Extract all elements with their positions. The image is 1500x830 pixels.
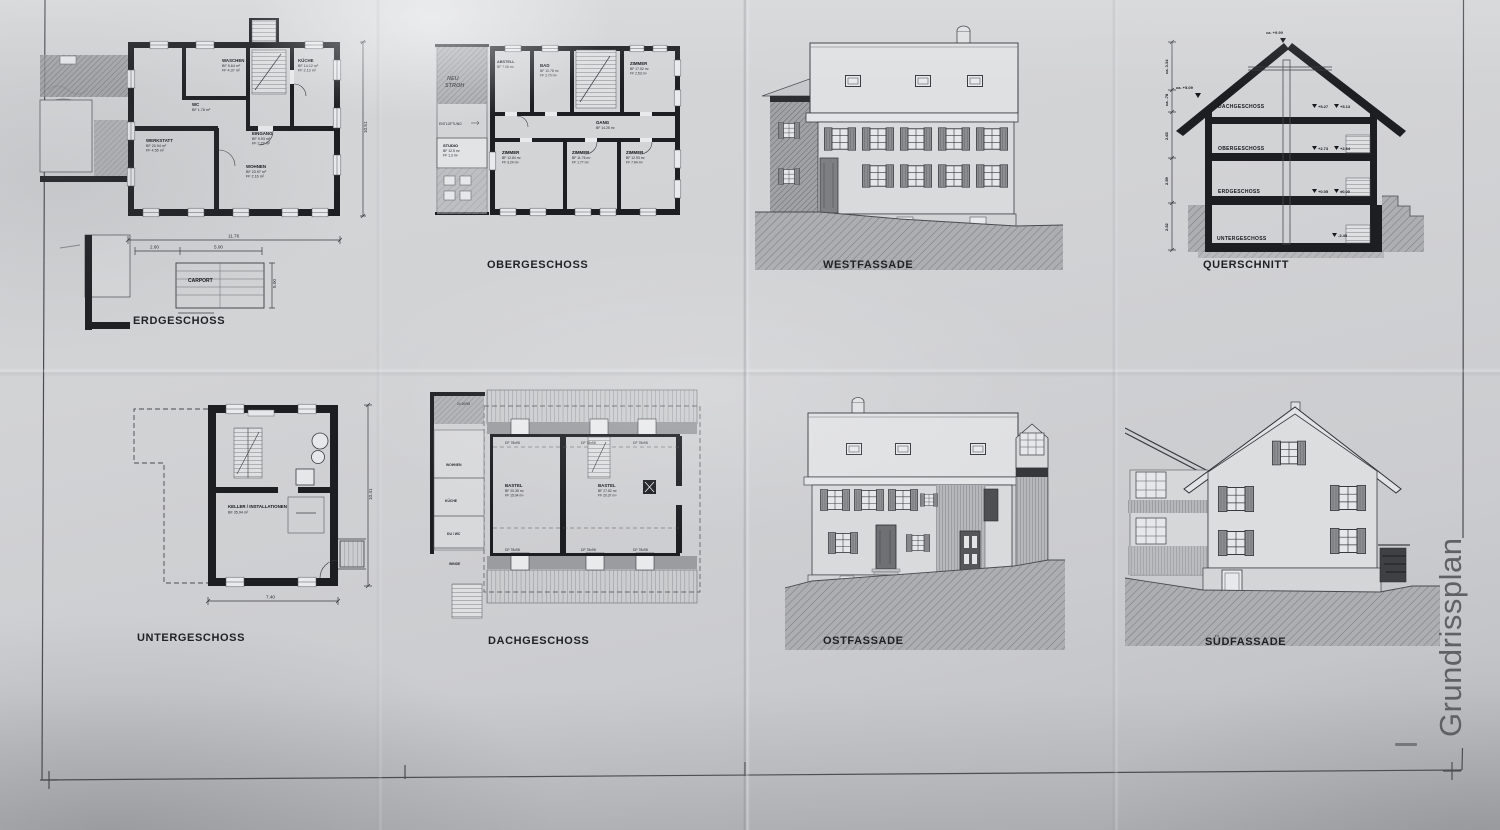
westfassade-drawing: WESTFASSADE: [755, 15, 1065, 285]
elev-value: +0.05: [1318, 189, 1329, 194]
shuttered-window: [1330, 485, 1365, 510]
tank-circle: [312, 451, 325, 464]
boiler-box: [296, 469, 314, 485]
room-value: BF 14.25 m²: [596, 126, 616, 130]
room-label-wc: WC: [192, 102, 200, 107]
shuttered-window: [976, 165, 1007, 187]
carport-label: CARPORT: [188, 278, 213, 284]
room-value: FF 2.27 m²: [252, 142, 271, 146]
untergeschoss-drawing: KELLER / INSTALLATIONEN BF 35.94 m² 7.40…: [115, 385, 405, 655]
roof-vent: [846, 76, 861, 87]
room-value: FF 15.04 m²: [505, 494, 524, 498]
floorplan-walls: [208, 404, 338, 587]
room-value: BF 12.93 m²: [626, 156, 646, 160]
door-swings: [517, 116, 652, 154]
house-wall: [818, 122, 1014, 214]
room-value: BF 20.94 m²: [146, 144, 167, 148]
floor-opening: [288, 497, 324, 533]
stairs: [252, 21, 286, 94]
roof-window-labels: DF 78x98 DF 78x98 DF 78x98 DF 78x98 DF 7…: [505, 441, 648, 552]
house-roof: [804, 398, 1018, 486]
house-roof: [806, 26, 1018, 122]
floor-dach: DACHGESCHOSS: [1218, 104, 1265, 110]
room-value: BF 7.08 m²: [497, 65, 515, 69]
exterior-stairs: [338, 539, 366, 569]
room-value: BF 20.35 m²: [505, 489, 525, 493]
shuttered-window: [1330, 528, 1365, 553]
side-winde: WINDE: [449, 562, 461, 566]
room-label-wohnen: WOHNEN: [246, 164, 266, 169]
floor-ober: OBERGESCHOSS: [1218, 146, 1265, 152]
elev-value: -2.45: [1338, 233, 1348, 238]
room-label-keller: KELLER / INSTALLATIONEN: [228, 504, 287, 509]
dimension-chain-left: [1168, 40, 1176, 252]
shuttered-window: [1218, 486, 1253, 511]
room-label-gang: GANG: [596, 120, 610, 125]
room-value: FF 1.77 m²: [572, 161, 589, 165]
elev-value: +5.13: [1340, 104, 1351, 109]
elev-value: +2.64: [1340, 146, 1351, 151]
room-label-bastel-w: BASTEL: [505, 483, 523, 488]
room-value: BF 5.64 m²: [222, 64, 241, 68]
room-label-zimmer-no: ZIMMER: [630, 61, 648, 66]
floor-erd: ERDGESCHOSS: [1218, 189, 1261, 195]
untergeschoss-title: UNTERGESCHOSS: [137, 632, 245, 644]
roof-vent: [847, 444, 862, 455]
querschnitt-title: QUERSCHNITT: [1203, 259, 1289, 271]
querschnitt-drawing: ca. 3.34 ca. .78 2.65 2.59 2.52 ca. +9.9…: [1140, 15, 1440, 285]
note-neu: NEU: [447, 76, 460, 82]
room-value: FF 3.24 m²: [502, 161, 519, 165]
plan-title-vertical: Grundrissplan: [1430, 505, 1472, 737]
room-label-bad: BAD: [540, 63, 550, 68]
df-label: DF 78x98: [633, 548, 648, 552]
adjacent-building-partial-west: [40, 55, 130, 330]
roof-vent: [971, 444, 986, 455]
dim-width: 7.40: [266, 595, 275, 600]
level-ridge: ca. +9.99: [1266, 30, 1284, 35]
shuttered-window: [938, 165, 969, 187]
room-label-zimmer-2: ZIMMER: [572, 150, 590, 155]
dim-height: 10.51: [363, 121, 368, 133]
shuttered-window: [900, 165, 931, 187]
adjacent-building-left: [1125, 428, 1208, 575]
room-value: FF 2.70 m²: [540, 74, 557, 78]
dim-carport: 5.00: [272, 279, 277, 288]
roof-vent: [916, 76, 931, 87]
note-stroh: STROH: [445, 83, 465, 89]
room-value: BF 12.5 m²: [443, 149, 461, 153]
room-value: FF 4.37 m²: [222, 69, 241, 73]
registration-cross-right: [1443, 762, 1461, 780]
obergeschoss-drawing: NEU STROH ENTLÜFTUNG STUDIO BF 12.5 m² F…: [425, 20, 715, 290]
entry-door: [876, 525, 896, 569]
room-label-zimmer-3: ZIMMER: [626, 150, 644, 155]
shuttered-window: [1218, 530, 1253, 555]
level-eaves: ca. +5.09: [1176, 85, 1194, 90]
room-value: FF 4.55 m²: [146, 149, 165, 153]
df-label: DF 78x98: [581, 548, 596, 552]
elev-value: +2.73: [1318, 146, 1329, 151]
room-label-abstell: ABSTELL: [497, 60, 515, 64]
westfassade-title: WESTFASSADE: [823, 259, 913, 271]
room-value: FF 2.13 m²: [298, 69, 317, 73]
dark-opening: [984, 489, 998, 521]
erdgeschoss-title: ERDGESCHOSS: [133, 315, 225, 327]
tank-circle: [312, 433, 328, 449]
upper-floor-outline-dashed: [134, 409, 208, 583]
shuttered-window: [976, 128, 1007, 150]
suedfassade-drawing: SÜDFASSADE: [1125, 395, 1440, 660]
dim-total: 11.76: [228, 234, 240, 239]
room-value: BF 23.97 m²: [246, 170, 267, 174]
dim-roof: ca. 3.34: [1164, 59, 1169, 74]
adjacent-structure-right: [1016, 424, 1048, 568]
room-label-zimmer-1: ZIMMER: [502, 150, 520, 155]
room-label-waschen: WASCHEN: [222, 58, 244, 63]
df-label: DF 78x98: [505, 441, 520, 445]
shuttered-window: [862, 128, 893, 150]
dim-knee: ca. .78: [1164, 93, 1169, 106]
room-value: BF 9.93 m²: [252, 137, 271, 141]
dim-mid: 5.00: [214, 245, 223, 250]
shuttered-window: [920, 494, 938, 507]
note-entlueftung: ENTLÜFTUNG: [439, 122, 462, 126]
gable-window: [1272, 441, 1305, 465]
room-value: FF 20.37 m²: [598, 494, 617, 498]
shuttered-window: [824, 128, 855, 150]
shuttered-window: [828, 533, 857, 554]
registration-cross-left: [40, 771, 58, 789]
side-wohnen: WOHNEN: [446, 463, 462, 467]
room-value: FF 7.94 m²: [626, 161, 643, 165]
carport: CARPORT: [176, 263, 264, 314]
shuttered-window: [854, 490, 883, 511]
dim-height: 10.41: [368, 488, 373, 500]
elev-value: +5.27: [1318, 104, 1329, 109]
room-value: BF 11.76 m²: [572, 156, 591, 160]
stairs: [234, 428, 262, 478]
room-value: FF 2.16 m²: [246, 175, 265, 179]
room-value: BF 12.84 m²: [502, 156, 522, 160]
shuttered-window: [888, 490, 917, 511]
exterior-stairs: [1378, 545, 1410, 582]
dim-og: 2.65: [1164, 131, 1169, 140]
room-label-eingang: EINGANG: [252, 131, 273, 136]
stairs: [576, 50, 616, 108]
dachgeschoss-title: DACHGESCHOSS: [488, 635, 589, 647]
room-value: BF 1.78 m²: [192, 108, 211, 112]
floor-unter: UNTERGESCHOSS: [1217, 236, 1267, 242]
side-duwc: DU / WC: [447, 532, 461, 536]
room-value: BF 35.94 m²: [228, 511, 249, 515]
shuttered-window: [778, 123, 800, 138]
room-label-studio: STUDIO: [443, 143, 458, 148]
df-label: DF 78x98: [633, 441, 648, 445]
note-top: 2x 60/98: [457, 402, 470, 406]
frame-bottom-border: [42, 770, 1462, 780]
df-label: DF 78x98: [505, 548, 520, 552]
room-value: BF 14.12 m²: [298, 64, 319, 68]
floor-labels: DACHGESCHOSS OBERGESCHOSS ERDGESCHOSS UN…: [1217, 104, 1267, 242]
side-kueche: KÜCHE: [445, 498, 458, 503]
entry-door: [820, 158, 838, 213]
adjacent-building-partial: 2x 60/98 WOHNEN KÜCHE DU / WC WINDE: [430, 392, 485, 618]
section-structure: [1198, 60, 1384, 252]
shuttered-window: [862, 165, 893, 187]
ostfassade-title: OSTFASSADE: [823, 635, 904, 647]
shuttered-window: [820, 490, 849, 511]
dim-eg: 2.59: [1164, 176, 1169, 185]
roof-vent: [968, 76, 983, 87]
df-label: DF 78x98: [581, 441, 596, 445]
room-value: FF 1.3 m²: [443, 154, 459, 158]
room-value: BF 27.82 m²: [598, 489, 618, 493]
dim-left: 2.60: [150, 245, 159, 250]
shuttered-window: [900, 128, 931, 150]
scanned-plan-photo: WASCHEN BF 5.64 m² FF 4.37 m² KÜCHE BF 1…: [0, 0, 1500, 830]
tiny-stamp-smudge: [1395, 743, 1417, 746]
suedfassade-title: SÜDFASSADE: [1205, 635, 1286, 648]
shuttered-window: [906, 535, 929, 552]
shuttered-window: [778, 169, 800, 184]
dachgeschoss-drawing: DF 78x98 DF 78x98 DF 78x98 DF 78x98 DF 7…: [425, 378, 725, 653]
ostfassade-drawing: OSTFASSADE: [785, 390, 1065, 650]
room-label-werkstatt: WERKSTATT: [146, 138, 173, 143]
dim-ug: 2.52: [1164, 222, 1169, 231]
obergeschoss-title: OBERGESCHOSS: [487, 259, 588, 271]
room-value: BF 10.78 m²: [540, 69, 560, 73]
elevation-values: +5.27 +5.13 +2.73 +2.64 +0.05 ±0.00 -2.4…: [1312, 104, 1351, 238]
house-gable: [1184, 402, 1401, 592]
room-label-bastel-e: BASTEL: [598, 483, 616, 488]
room-value: BF 17.52 m²: [630, 67, 650, 71]
room-value: FF 2.53 m²: [630, 72, 647, 76]
erdgeschoss-drawing: WASCHEN BF 5.64 m² FF 4.37 m² KÜCHE BF 1…: [30, 0, 420, 345]
adjacent-strip: NEU STROH ENTLÜFTUNG STUDIO BF 12.5 m² F…: [435, 44, 489, 215]
shuttered-window: [938, 128, 969, 150]
room-label-kueche: KÜCHE: [298, 58, 314, 63]
roof-vent: [896, 444, 911, 455]
elev-value: ±0.00: [1340, 189, 1351, 194]
chimney: [643, 480, 656, 494]
